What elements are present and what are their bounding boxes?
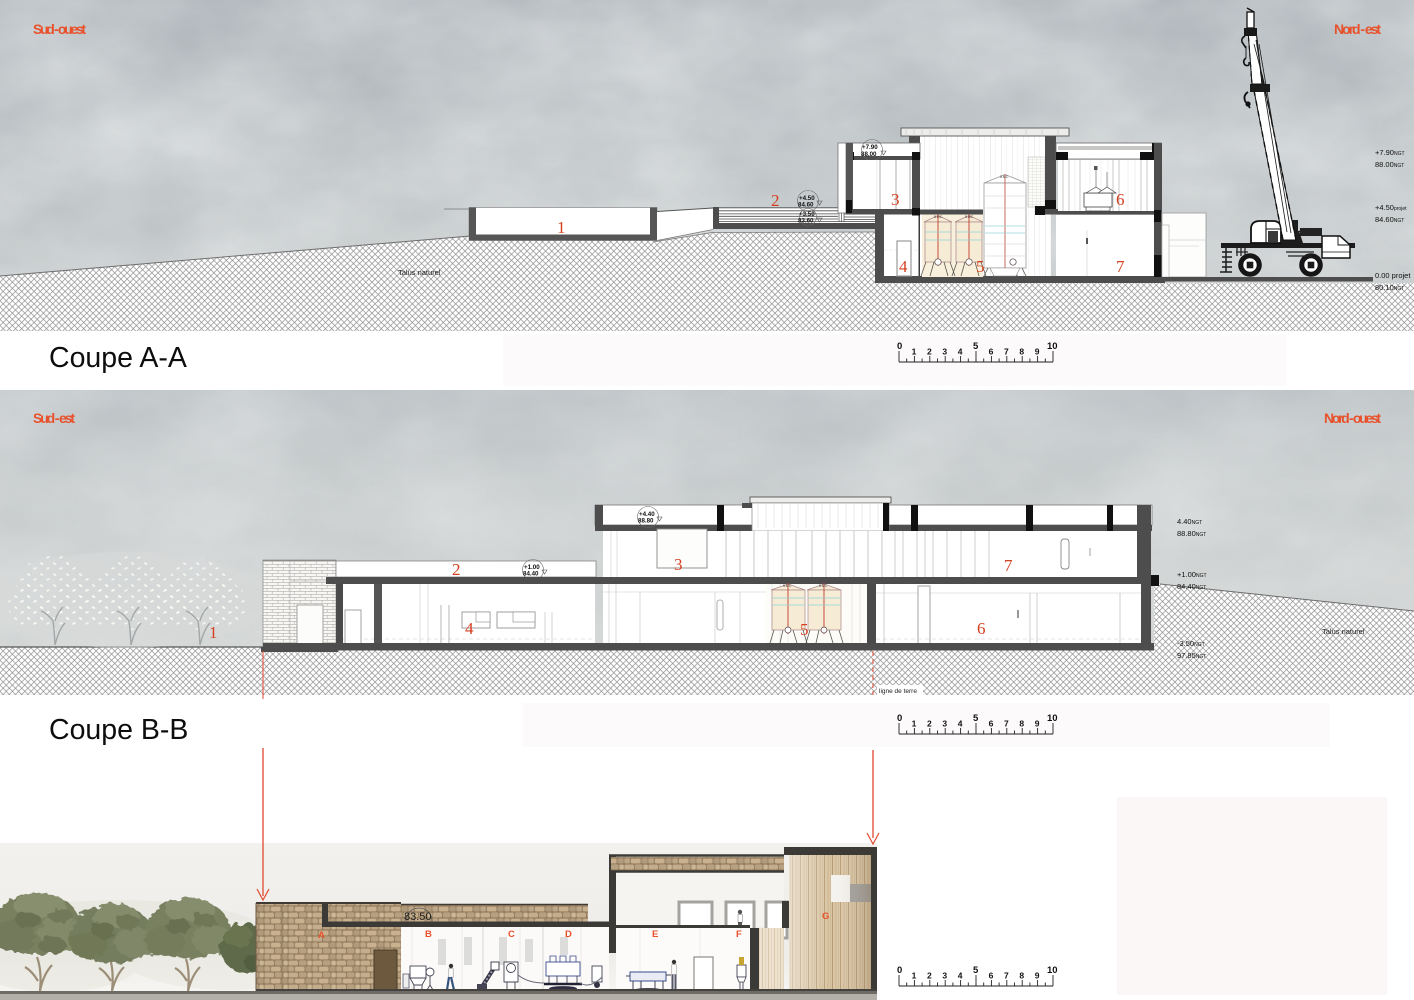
svg-text:Sud - ouest: Sud - ouest [33,21,86,37]
svg-text:5.MC: 5.MC [1000,175,1009,179]
svg-text:Sud - est: Sud - est [33,410,75,426]
svg-text:5.MC: 5.MC [965,215,974,219]
svg-text:3: 3 [891,190,900,209]
svg-text:E: E [652,929,658,940]
svg-text:5.MC: 5.MC [783,584,792,588]
svg-text:ligne de terre: ligne de terre [879,688,917,695]
svg-text:0.00 projet: 0.00 projet [1375,271,1411,280]
svg-text:Talus naturel: Talus naturel [398,268,441,277]
svg-text:Nord - est: Nord - est [1334,21,1381,37]
svg-text:6: 6 [977,619,986,638]
svg-text:D: D [565,929,572,940]
svg-text:5.MC: 5.MC [934,215,943,219]
svg-text:83.50: 83.50 [404,911,432,923]
svg-text:5.MC: 5.MC [819,584,828,588]
svg-text:83.60: 83.60 [798,218,814,225]
svg-text:Nord - ouest: Nord - ouest [1324,410,1381,426]
svg-text:C: C [508,929,515,940]
svg-text:Coupe B-B: Coupe B-B [49,714,188,746]
svg-text:B: B [425,929,432,940]
svg-text:7: 7 [1004,556,1013,575]
svg-text:1: 1 [557,218,566,237]
svg-text:3: 3 [674,555,683,574]
svg-text:4: 4 [465,619,474,638]
svg-text:5: 5 [800,620,809,639]
svg-text:7: 7 [1116,257,1125,276]
svg-text:88.00: 88.00 [861,151,877,158]
svg-text:Talus naturel: Talus naturel [1322,627,1365,636]
svg-text:G: G [822,911,829,922]
svg-text:Coupe A-A: Coupe A-A [49,342,187,374]
svg-text:A: A [318,930,325,941]
svg-text:84.40: 84.40 [523,571,539,578]
svg-text:F: F [736,929,742,940]
svg-text:+7.90: +7.90 [862,144,878,151]
svg-text:84.60: 84.60 [798,202,814,209]
svg-text:4: 4 [899,257,908,276]
svg-text:6: 6 [1116,190,1125,209]
svg-text:2: 2 [452,560,461,579]
svg-text:1: 1 [209,623,218,642]
svg-text:88.80: 88.80 [638,518,654,525]
svg-text:5: 5 [976,257,985,276]
svg-text:2: 2 [771,191,780,210]
